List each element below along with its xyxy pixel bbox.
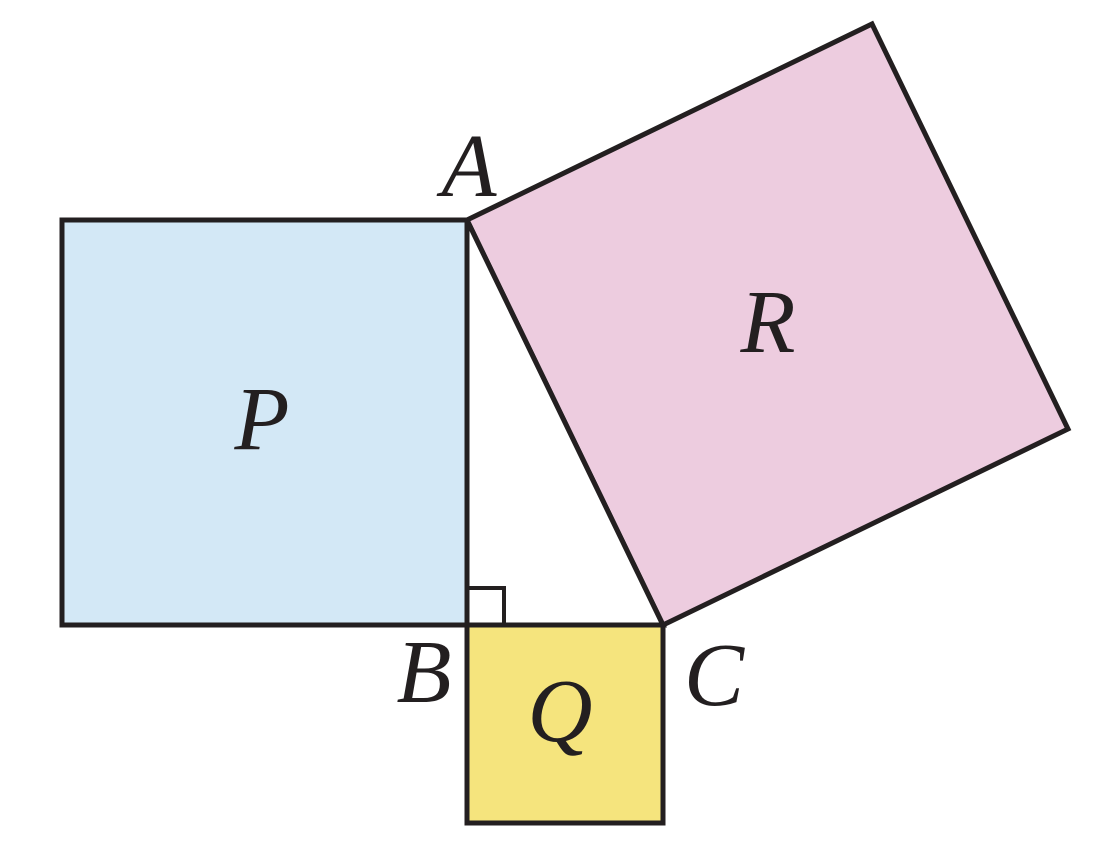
vertex-label-a: A [437,117,498,216]
vertex-label-b: B [397,623,452,722]
figure-canvas: A B C P Q R [0,0,1108,858]
pythagoras-diagram: A B C P Q R [0,0,1108,858]
square-label-q: Q [528,662,593,761]
vertex-label-c: C [684,626,745,725]
square-label-r: R [740,273,796,372]
square-label-p: P [234,370,290,469]
